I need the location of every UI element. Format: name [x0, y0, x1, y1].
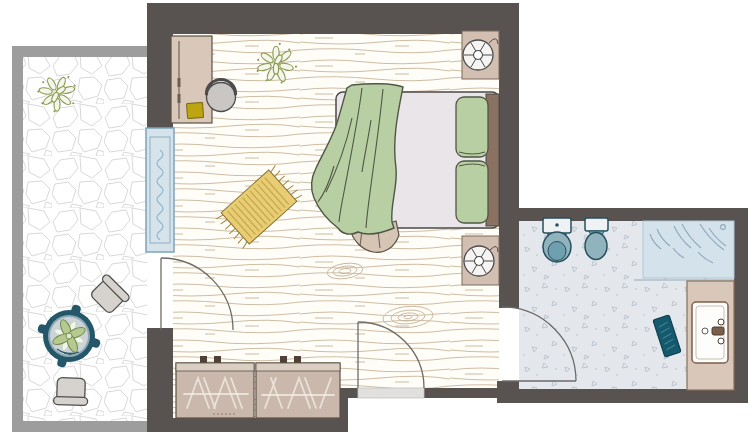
- faucet: [712, 327, 724, 335]
- laptop: [187, 102, 204, 118]
- drain: [702, 328, 708, 334]
- patio-chair: [53, 377, 88, 405]
- window: [146, 128, 174, 252]
- desk: [171, 36, 212, 123]
- patio-floor: [23, 57, 147, 421]
- faucet-handle: [718, 338, 724, 344]
- faucet-handle: [718, 319, 724, 325]
- bidet: [585, 218, 608, 260]
- vanity-sink: [687, 281, 734, 390]
- table-fan: [463, 40, 493, 70]
- nightstand: [462, 236, 499, 285]
- floor-plan: [0, 0, 754, 435]
- pillow: [456, 161, 488, 223]
- toilet: [543, 218, 571, 262]
- pillow: [456, 97, 488, 157]
- nightstand: [462, 31, 499, 79]
- table-fan: [464, 246, 494, 276]
- dresser: [176, 356, 340, 418]
- shower: [634, 221, 734, 280]
- desk-chair: [207, 80, 236, 112]
- floor-plan-drawing: [0, 0, 754, 435]
- double-bed: [312, 84, 499, 253]
